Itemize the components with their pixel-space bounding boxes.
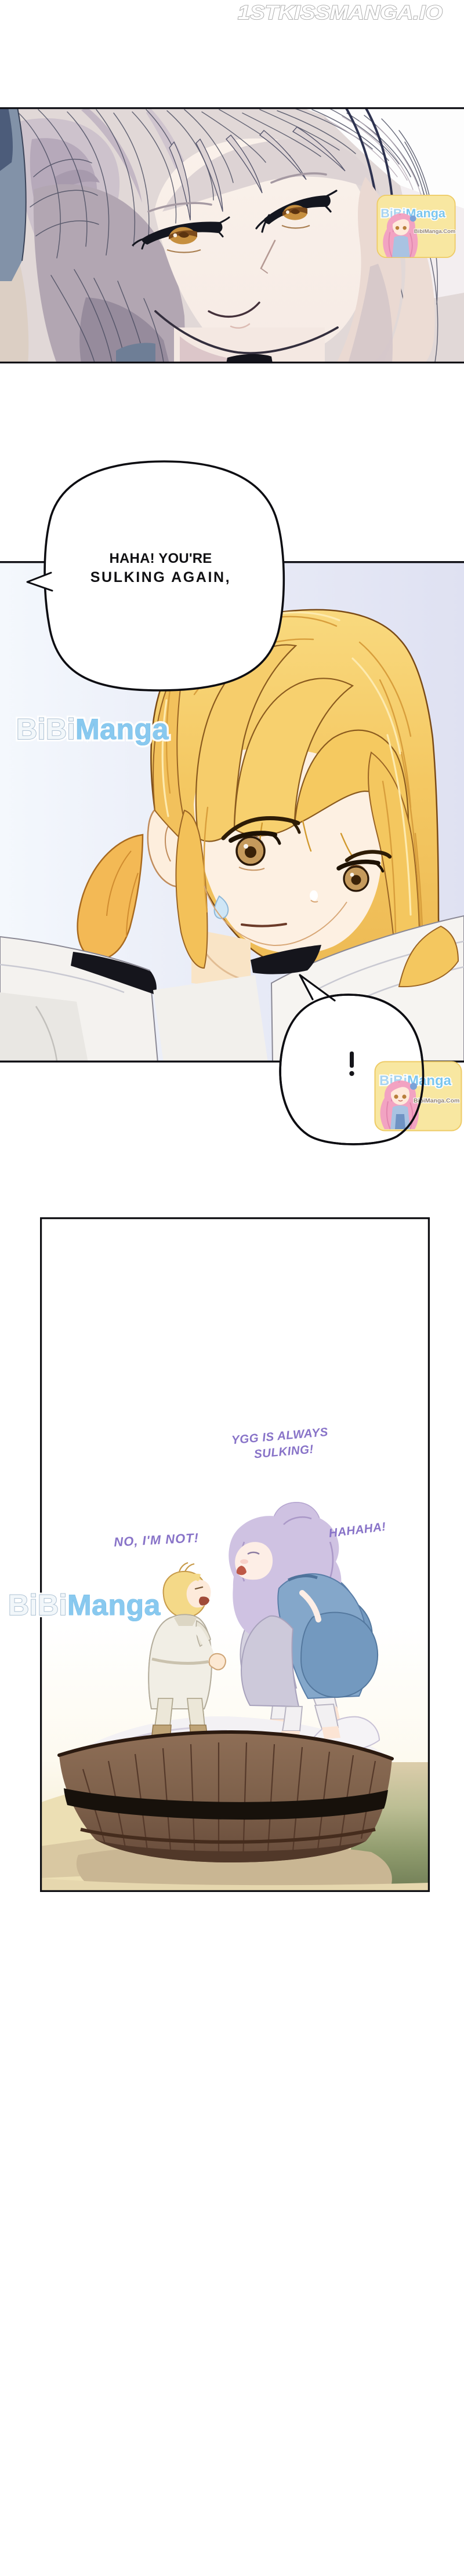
svg-text:BiBiManga: BiBiManga (8, 1589, 161, 1621)
svg-text:BibiManga.Com: BibiManga.Com (414, 1097, 459, 1104)
svg-text:SULKING AGAIN,: SULKING AGAIN, (90, 569, 231, 585)
svg-text:HAHA! YOU'RE: HAHA! YOU'RE (109, 551, 212, 566)
svg-text:1STKISSMANGA.IO: 1STKISSMANGA.IO (238, 2, 443, 24)
svg-text:BibiManga.Com: BibiManga.Com (414, 228, 455, 235)
svg-text:BiBiManga: BiBiManga (16, 713, 169, 745)
